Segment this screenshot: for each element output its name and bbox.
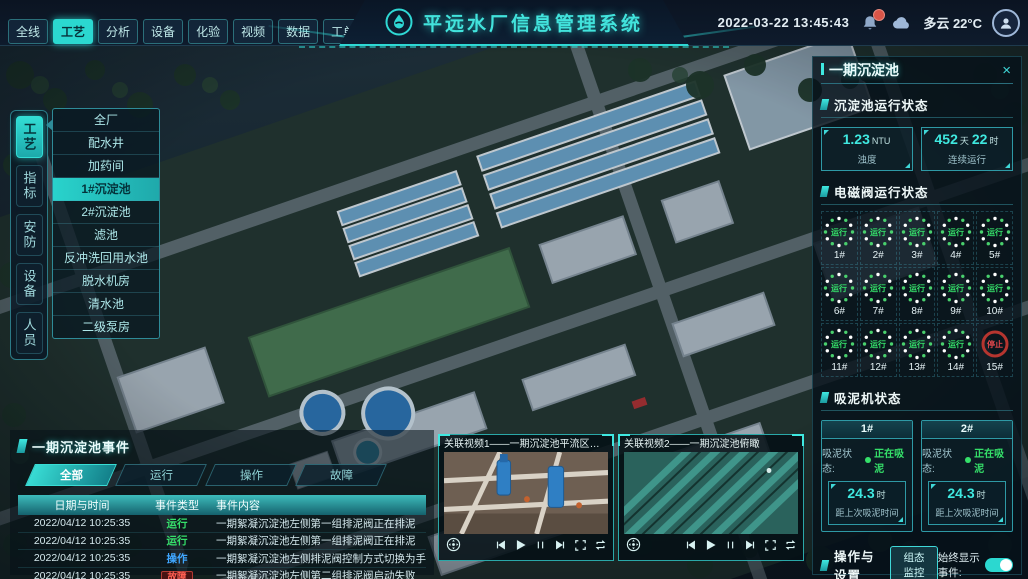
valve-status-icon: 运行 bbox=[978, 215, 1012, 249]
prev-icon[interactable] bbox=[493, 537, 508, 552]
valve-status-icon: 运行 bbox=[939, 215, 973, 249]
svg-text:运行: 运行 bbox=[870, 227, 886, 237]
valve-id-label: 5# bbox=[989, 250, 1000, 261]
detail-panel: 一期沉淀池 × 沉淀池运行状态 1.23NTU浊度452天22时连续运行 电磁阀… bbox=[812, 56, 1022, 575]
play-icon[interactable] bbox=[703, 537, 718, 552]
valve-status-icon: 运行 bbox=[900, 327, 934, 361]
event-row-4[interactable]: 2022/04/12 10:25:35故障一期絮凝沉淀池左侧第二组排泥阀启动失败 bbox=[18, 568, 426, 579]
weather-text: 多云 22°C bbox=[923, 13, 982, 32]
mud-time-box: 24.3时距上次吸泥时间 bbox=[928, 481, 1006, 525]
valve-status-icon: 运行 bbox=[861, 271, 895, 305]
dashboard: 全线工艺分析设备化验视频数据工单系统 平远水厂信息管理系统 2022-03-22… bbox=[0, 0, 1028, 579]
video-thumbnail bbox=[444, 452, 608, 534]
menu-item-8[interactable]: 脱水机房 bbox=[53, 270, 159, 293]
section-title: 吸泥机状态 bbox=[834, 388, 902, 407]
menu-item-6[interactable]: 滤池 bbox=[53, 224, 159, 247]
valve-cell-4[interactable]: 运行4# bbox=[937, 211, 974, 265]
valve-status-icon: 运行 bbox=[939, 271, 973, 305]
page-title: 平远水厂信息管理系统 bbox=[423, 9, 643, 36]
valve-status-icon: 运行 bbox=[939, 327, 973, 361]
mud-status-row: 吸泥状态:正在吸泥 bbox=[922, 445, 1012, 475]
section-operations: 操作与设置 组态监控 始终显示事件: bbox=[821, 546, 1013, 579]
valve-id-label: 7# bbox=[873, 306, 884, 317]
menu-item-10[interactable]: 二级泵房 bbox=[53, 316, 159, 338]
valve-cell-3[interactable]: 运行3# bbox=[899, 211, 936, 265]
svg-text:运行: 运行 bbox=[909, 339, 925, 349]
mud-status-label: 吸泥状态: bbox=[822, 445, 862, 475]
valve-id-label: 11# bbox=[831, 362, 847, 373]
valve-status-icon: 运行 bbox=[861, 327, 895, 361]
nav-tab-5[interactable]: 化验 bbox=[188, 19, 228, 44]
always-show-events-toggle[interactable] bbox=[985, 558, 1013, 572]
valve-cell-15[interactable]: 停止15# bbox=[976, 323, 1013, 377]
valve-id-label: 15# bbox=[986, 362, 1003, 373]
weather-cloud-icon bbox=[891, 12, 913, 34]
column-event-type: 事件类型 bbox=[146, 497, 208, 513]
process-area-menu: 全厂配水井加药间1#沉淀池2#沉淀池滤池反冲洗回用水池脱水机房清水池二级泵房 bbox=[52, 108, 160, 339]
valve-id-label: 12# bbox=[870, 362, 887, 373]
svg-text:运行: 运行 bbox=[909, 227, 925, 237]
valve-status-icon: 运行 bbox=[861, 215, 895, 249]
valve-id-label: 1# bbox=[834, 250, 845, 261]
nav-tab-6[interactable]: 视频 bbox=[233, 19, 273, 44]
section-accent-icon bbox=[17, 439, 28, 453]
nav-tab-1[interactable]: 全线 bbox=[8, 19, 48, 44]
valve-status-icon: 运行 bbox=[822, 327, 856, 361]
svg-text:运行: 运行 bbox=[948, 339, 964, 349]
detail-panel-title: 一期沉淀池 bbox=[821, 60, 899, 80]
valve-id-label: 8# bbox=[911, 306, 922, 317]
section-accent-icon bbox=[820, 392, 829, 403]
video-title: 关联视频1——一期沉淀池平流区排泥管廊 bbox=[444, 438, 608, 452]
valve-cell-13[interactable]: 运行13# bbox=[899, 323, 936, 377]
mud-status-value: 正在吸泥 bbox=[974, 445, 1012, 475]
section-run-status: 沉淀池运行状态 bbox=[821, 94, 1013, 118]
mud-card-title: 2# bbox=[922, 421, 1012, 439]
svg-text:运行: 运行 bbox=[870, 339, 886, 349]
side-tab-2[interactable]: 指标 bbox=[16, 165, 43, 207]
side-tab-3[interactable]: 安防 bbox=[16, 214, 43, 256]
valve-cell-7[interactable]: 运行7# bbox=[860, 267, 897, 321]
valve-id-label: 14# bbox=[947, 362, 964, 373]
title-underline-decor bbox=[299, 46, 729, 48]
always-show-events-label: 始终显示事件: bbox=[938, 550, 981, 579]
valve-cell-12[interactable]: 运行12# bbox=[860, 323, 897, 377]
svg-text:运行: 运行 bbox=[987, 283, 1003, 293]
section-accent-icon bbox=[820, 99, 829, 110]
svg-text:运行: 运行 bbox=[831, 283, 847, 293]
svg-text:运行: 运行 bbox=[831, 227, 847, 237]
valve-cell-1[interactable]: 运行1# bbox=[821, 211, 858, 265]
section-title: 电磁阀运行状态 bbox=[834, 182, 929, 201]
fullscreen-icon[interactable] bbox=[763, 537, 778, 552]
fullscreen-icon[interactable] bbox=[573, 537, 588, 552]
mud-machine-cards: 1#吸泥状态:正在吸泥24.3时距上次吸泥时间2#吸泥状态:正在吸泥24.3时距… bbox=[821, 420, 1013, 532]
valve-status-icon: 运行 bbox=[822, 215, 856, 249]
section-accent-icon bbox=[820, 560, 829, 571]
video-panel-2: 关联视频2——一期沉淀池俯瞰 bbox=[618, 434, 804, 561]
side-tab-4[interactable]: 设备 bbox=[16, 263, 43, 305]
event-tab-2[interactable]: 运行 bbox=[115, 464, 207, 486]
menu-item-5[interactable]: 2#沉淀池 bbox=[53, 201, 159, 224]
event-row-3[interactable]: 2022/04/12 10:25:35操作一期絮凝沉淀池左侧排泥阀控制方式切换为… bbox=[18, 550, 426, 568]
menu-item-7[interactable]: 反冲洗回用水池 bbox=[53, 247, 159, 270]
scada-monitor-button[interactable]: 组态监控 bbox=[890, 546, 938, 579]
valve-cell-6[interactable]: 运行6# bbox=[821, 267, 858, 321]
video-controls bbox=[624, 534, 798, 555]
section-accent-icon bbox=[820, 186, 829, 197]
mud-card-1: 1#吸泥状态:正在吸泥24.3时距上次吸泥时间 bbox=[821, 420, 913, 532]
valve-status-icon: 运行 bbox=[822, 271, 856, 305]
section-valves: 电磁阀运行状态 bbox=[821, 181, 1013, 205]
pause-icon[interactable] bbox=[533, 537, 548, 552]
stat-box-2: 452天22时连续运行 bbox=[921, 127, 1013, 171]
svg-text:运行: 运行 bbox=[948, 227, 964, 237]
valve-status-icon: 运行 bbox=[900, 215, 934, 249]
mud-card-title: 1# bbox=[822, 421, 912, 439]
side-tab-5[interactable]: 人员 bbox=[16, 312, 43, 354]
detail-panel-header: 一期沉淀池 × bbox=[821, 57, 1013, 84]
video-title: 关联视频2——一期沉淀池俯瞰 bbox=[624, 438, 798, 452]
valve-cell-10[interactable]: 运行10# bbox=[976, 267, 1013, 321]
valve-cell-5[interactable]: 运行5# bbox=[976, 211, 1013, 265]
svg-text:运行: 运行 bbox=[909, 283, 925, 293]
mud-card-2: 2#吸泥状态:正在吸泥24.3时距上次吸泥时间 bbox=[921, 420, 1013, 532]
close-icon[interactable]: × bbox=[1000, 62, 1013, 79]
video-panel-1: 关联视频1——一期沉淀池平流区排泥管廊 bbox=[438, 434, 614, 561]
section-mud-machines: 吸泥机状态 bbox=[821, 387, 1013, 411]
stat-box-1: 1.23NTU浊度 bbox=[821, 127, 913, 171]
valve-cell-11[interactable]: 运行11# bbox=[821, 323, 858, 377]
status-dot-icon bbox=[965, 457, 971, 463]
mud-status-row: 吸泥状态:正在吸泥 bbox=[822, 445, 912, 475]
datetime-text: 2022-03-22 13:45:43 bbox=[718, 15, 850, 30]
app-logo-icon bbox=[385, 8, 413, 36]
valve-id-label: 4# bbox=[950, 250, 961, 261]
event-table-body: 2022/04/12 10:25:35运行一期絮凝沉淀池左侧第一组排泥阀正在排泥… bbox=[18, 515, 426, 579]
mud-time-box: 24.3时距上次吸泥时间 bbox=[828, 481, 906, 525]
ptz-dpad-icon[interactable] bbox=[446, 537, 461, 552]
mud-status-label: 吸泥状态: bbox=[922, 445, 962, 475]
valve-status-icon: 停止 bbox=[978, 327, 1012, 361]
status-dot-icon bbox=[865, 457, 871, 463]
event-row-1[interactable]: 2022/04/12 10:25:35运行一期絮凝沉淀池左侧第一组排泥阀正在排泥 bbox=[18, 515, 426, 533]
nav-tab-3[interactable]: 分析 bbox=[98, 19, 138, 44]
alarm-bell-icon[interactable] bbox=[859, 12, 881, 34]
valve-cell-9[interactable]: 运行9# bbox=[937, 267, 974, 321]
valve-cell-2[interactable]: 运行2# bbox=[860, 211, 897, 265]
user-avatar[interactable] bbox=[992, 9, 1020, 37]
event-tab-4[interactable]: 故障 bbox=[295, 464, 387, 486]
loop-icon[interactable] bbox=[593, 537, 608, 552]
side-tab-1[interactable]: 工艺 bbox=[16, 116, 43, 158]
header-right-cluster: 2022-03-22 13:45:43 多云 22°C bbox=[718, 0, 1020, 45]
video-controls bbox=[444, 534, 608, 555]
event-row-2[interactable]: 2022/04/12 10:25:35运行一期絮凝沉淀池左侧第一组排泥阀正在排泥 bbox=[18, 533, 426, 551]
top-header: 全线工艺分析设备化验视频数据工单系统 平远水厂信息管理系统 2022-03-22… bbox=[0, 0, 1028, 46]
column-event-content: 事件内容 bbox=[208, 497, 426, 513]
app-title-block: 平远水厂信息管理系统 bbox=[339, 0, 689, 46]
event-table-header: 日期与时间 事件类型 事件内容 bbox=[18, 495, 426, 515]
valve-id-label: 2# bbox=[873, 250, 884, 261]
nav-tab-4[interactable]: 设备 bbox=[143, 19, 183, 44]
menu-item-1[interactable]: 全厂 bbox=[53, 109, 159, 132]
ptz-dpad-icon[interactable] bbox=[626, 537, 641, 552]
events-panel-header: 一期沉淀池事件 bbox=[18, 436, 426, 456]
next-icon[interactable] bbox=[743, 537, 758, 552]
valve-id-label: 10# bbox=[986, 306, 1003, 317]
svg-text:运行: 运行 bbox=[948, 283, 964, 293]
event-tab-1[interactable]: 全部 bbox=[25, 464, 117, 486]
play-icon[interactable] bbox=[513, 537, 528, 552]
alarm-badge bbox=[873, 9, 885, 21]
run-status-stats: 1.23NTU浊度452天22时连续运行 bbox=[821, 127, 1013, 171]
loop-icon[interactable] bbox=[783, 537, 798, 552]
menu-item-9[interactable]: 清水池 bbox=[53, 293, 159, 316]
svg-text:运行: 运行 bbox=[831, 339, 847, 349]
valve-cell-14[interactable]: 运行14# bbox=[937, 323, 974, 377]
nav-tab-2[interactable]: 工艺 bbox=[53, 19, 93, 44]
column-datetime: 日期与时间 bbox=[18, 497, 146, 513]
menu-item-2[interactable]: 配水井 bbox=[53, 132, 159, 155]
valve-status-icon: 运行 bbox=[978, 271, 1012, 305]
svg-text:运行: 运行 bbox=[870, 283, 886, 293]
valve-id-label: 9# bbox=[950, 306, 961, 317]
mud-status-value: 正在吸泥 bbox=[874, 445, 912, 475]
events-panel-title: 一期沉淀池事件 bbox=[32, 437, 130, 456]
valve-id-label: 13# bbox=[909, 362, 926, 373]
section-title: 操作与设置 bbox=[834, 546, 878, 579]
valve-id-label: 6# bbox=[834, 306, 845, 317]
menu-item-3[interactable]: 加药间 bbox=[53, 155, 159, 178]
event-tab-3[interactable]: 操作 bbox=[205, 464, 297, 486]
next-icon[interactable] bbox=[553, 537, 568, 552]
valve-cell-8[interactable]: 运行8# bbox=[899, 267, 936, 321]
prev-icon[interactable] bbox=[683, 537, 698, 552]
menu-item-4[interactable]: 1#沉淀池 bbox=[53, 178, 159, 201]
svg-text:停止: 停止 bbox=[987, 339, 1003, 349]
video-thumbnail bbox=[624, 452, 798, 534]
svg-text:运行: 运行 bbox=[987, 227, 1003, 237]
valve-id-label: 3# bbox=[911, 250, 922, 261]
pause-icon[interactable] bbox=[723, 537, 738, 552]
valve-status-icon: 运行 bbox=[900, 271, 934, 305]
left-category-tabs: 工艺指标安防设备人员 bbox=[10, 110, 48, 360]
events-panel: 一期沉淀池事件 全部运行操作故障 日期与时间 事件类型 事件内容 2022/04… bbox=[10, 430, 434, 575]
event-filter-tabs: 全部运行操作故障 bbox=[30, 464, 426, 486]
section-title: 沉淀池运行状态 bbox=[834, 95, 929, 114]
valve-status-grid: 运行1#运行2#运行3#运行4#运行5#运行6#运行7#运行8#运行9#运行10… bbox=[821, 211, 1013, 377]
